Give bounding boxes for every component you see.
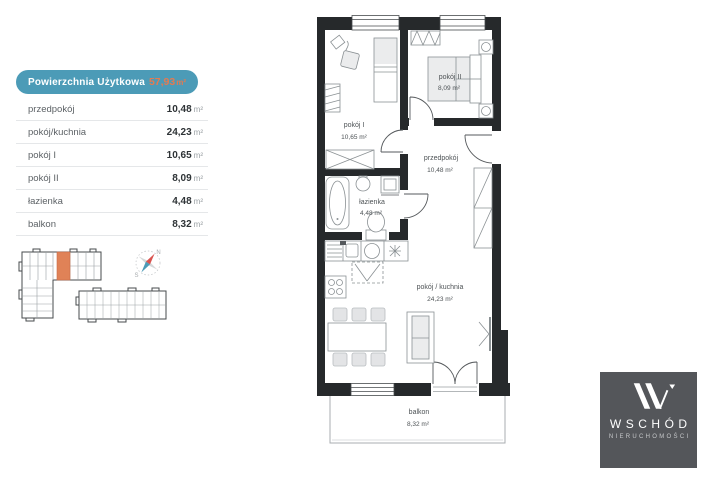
bed-pokoj-1	[374, 38, 397, 102]
label-lazienka: łazienka	[359, 199, 385, 206]
sofa	[407, 312, 434, 363]
bathtub	[326, 177, 349, 229]
floor-plan: pokój I 10,65 m² pokój II 8,09 m² przedp…	[317, 16, 510, 444]
label-pokoj-kuchnia: pokój / kuchnia	[417, 284, 464, 291]
stove	[325, 276, 346, 298]
clothes-rack	[411, 31, 440, 45]
nightstand-bottom	[479, 104, 493, 118]
door-entrance	[465, 135, 492, 163]
logo-w-icon	[621, 382, 677, 410]
logo-name: WSCHÓD	[605, 417, 691, 431]
compass: N S	[134, 250, 160, 279]
bookshelf	[325, 84, 340, 112]
highlighted-unit	[57, 252, 70, 280]
tv	[479, 317, 490, 351]
nightstand-top	[479, 40, 493, 54]
dishwasher	[352, 262, 383, 283]
chair	[340, 50, 359, 69]
compass-north-label: N	[156, 250, 160, 256]
compass-south-label: S	[134, 273, 138, 279]
company-logo: WSCHÓD NIERUCHOMOŚCI	[600, 372, 697, 468]
washing-machine	[381, 176, 399, 195]
area-przedpokoj: 10,48 m²	[427, 167, 453, 174]
kitchen-counter	[325, 241, 408, 261]
area-pokoj-kuchnia: 24,23 m²	[427, 296, 453, 303]
label-pokoj-1: pokój I	[344, 122, 365, 129]
flat-card-page: Powierzchnia Użytkowa 57,93m² przedpokój…	[0, 0, 710, 481]
balcony	[330, 396, 505, 443]
bathroom-sink	[356, 176, 370, 191]
label-pokoj-2: pokój II	[439, 74, 462, 81]
wardrobe-pokoj-1	[326, 150, 374, 169]
label-balkon: balkon	[409, 409, 430, 416]
label-przedpokoj: przedpokój	[424, 155, 459, 162]
wardrobe-hall	[474, 168, 492, 248]
door-balcony	[433, 362, 477, 384]
dining-table	[328, 308, 386, 366]
area-pokoj-1: 10,65 m²	[341, 134, 367, 141]
area-lazienka: 4,48 m²	[360, 210, 383, 217]
hob-symbol	[389, 245, 401, 257]
logo-subtitle: NIERUCHOMOŚCI	[607, 434, 691, 440]
area-balkon: 8,32 m²	[407, 421, 430, 428]
area-pokoj-2: 8,09 m²	[438, 85, 461, 92]
